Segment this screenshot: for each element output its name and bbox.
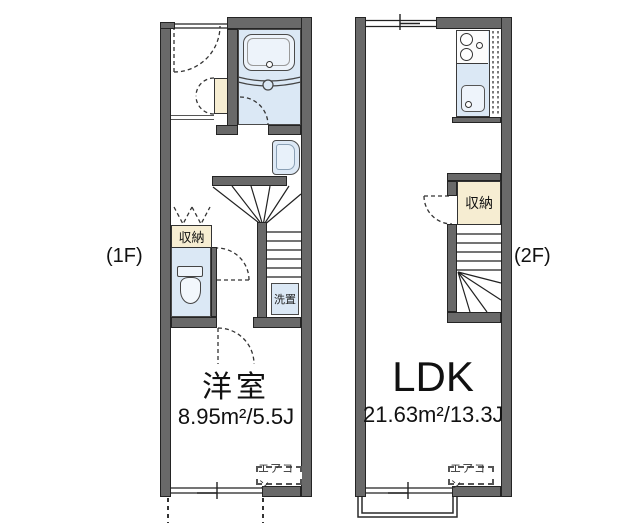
washbasin-icon — [272, 140, 300, 175]
wall-1f-bath-left — [227, 29, 238, 135]
overhang-dashed-lines — [168, 498, 263, 523]
washbasin-bowl — [276, 144, 295, 170]
wall-2f-closet-top — [447, 173, 501, 181]
wall-1f-under-bath-left — [216, 125, 238, 135]
toilet-door-arc — [217, 248, 249, 280]
entrance-door-arc — [174, 26, 220, 72]
sink-drain-icon — [465, 101, 472, 108]
burner-icon — [460, 48, 473, 61]
wall-1f-bedroom-top-right — [253, 317, 301, 328]
stairs-2f-lines — [457, 234, 501, 312]
wall-2f-closet-left-stub — [447, 181, 457, 196]
room-area-2f: 21.63m²/13.3J — [363, 403, 503, 426]
aircon-box-1f: エアコン — [256, 466, 302, 485]
aircon-label-2f: エアコン — [450, 460, 492, 492]
wall-1f-top-bath — [227, 17, 312, 29]
room-name-1f: 洋室 — [166, 372, 306, 404]
washer-space-box: 洗置 — [271, 283, 299, 315]
storage-box-2f: 収納 — [457, 181, 501, 225]
wall-1f-under-bath-right — [268, 125, 301, 135]
storage-door-arc-2f — [424, 196, 452, 224]
wall-1f-stair-top — [212, 176, 287, 186]
wall-2f-counter-end — [452, 117, 501, 123]
floorplan-canvas: 洗置 収納 収納 — [0, 0, 640, 526]
bathtub-drain-icon — [266, 61, 273, 68]
storage-label-1f: 収納 — [178, 227, 204, 246]
bedroom-door-arc — [218, 328, 254, 364]
entrance-cabinet — [214, 78, 228, 114]
wall-1f-stair-inner — [257, 222, 267, 318]
room-name-2f: LDK — [363, 355, 503, 399]
stove-icon — [457, 31, 488, 64]
aircon-label-1f: エアコン — [258, 460, 300, 492]
balcony-lines — [358, 497, 457, 517]
storage-label-2f: 収納 — [465, 193, 493, 213]
cabinet-door-arcs — [196, 78, 214, 114]
floor-label-1f: (1F) — [106, 246, 160, 267]
kitchen-sink-icon — [461, 85, 485, 112]
room-area-1f: 8.95m²/5.5J — [166, 405, 306, 428]
storage-folding-door-1f — [174, 207, 210, 224]
refrigerator-space-lines — [493, 31, 498, 114]
aircon-box-2f: エアコン — [448, 466, 494, 485]
wall-1f-toilet-right — [211, 247, 217, 317]
wall-1f-bedroom-top-left — [171, 317, 217, 328]
burner-small-icon — [476, 42, 483, 49]
bathtub-icon — [243, 34, 295, 71]
wall-2f-stairwell-left — [447, 224, 457, 312]
entrance-step-lines — [171, 116, 214, 120]
toilet-tank-icon — [177, 266, 203, 277]
floor-label-2f: (2F) — [514, 246, 568, 267]
kitchen-counter-icon — [456, 30, 490, 117]
burner-icon — [460, 33, 473, 46]
toilet-bowl-icon — [180, 277, 201, 304]
washer-space-label: 洗置 — [274, 291, 296, 307]
storage-box-1f: 収納 — [171, 225, 212, 248]
wall-2f-stairwell-bottom — [447, 312, 501, 323]
wall-1f-top-stub — [160, 22, 175, 29]
